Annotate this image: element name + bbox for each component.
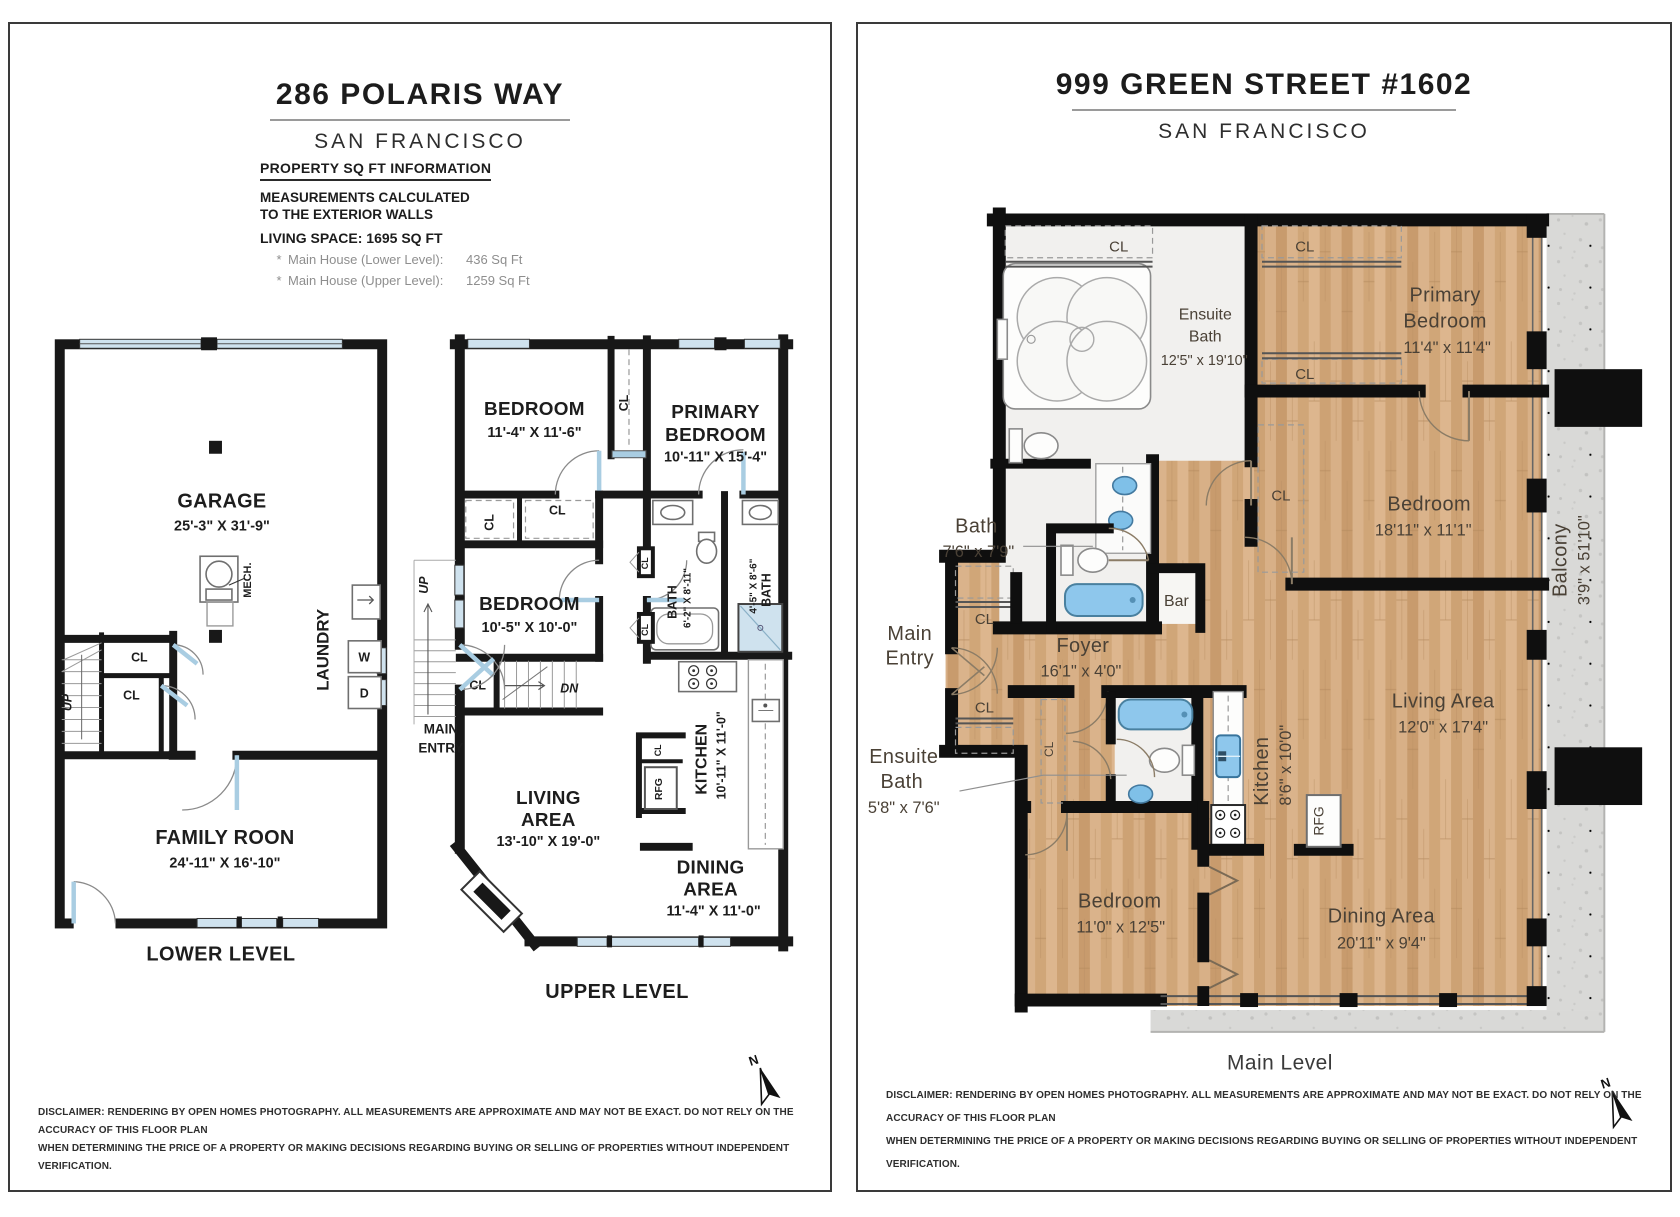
right-disclaimer: DISCLAIMER: RENDERING BY OPEN HOMES PHOT… xyxy=(886,1084,1650,1176)
primary-label-2: BEDROOM xyxy=(665,425,766,446)
bath2-label: BATH xyxy=(759,573,773,607)
closet-label: CL xyxy=(617,394,631,411)
dryer-label: D xyxy=(360,687,369,701)
main-entry-label-2: ENTRY xyxy=(418,740,463,755)
left-disclaimer: DISCLAIMER: RENDERING BY OPEN HOMES PHOT… xyxy=(38,1104,810,1176)
dn-label: DN xyxy=(560,682,579,696)
main-level-label: Main Level xyxy=(1227,1052,1333,1075)
primary-dims: 10'-11" X 15'-4" xyxy=(664,450,767,466)
rfg-label: RFG xyxy=(654,778,665,800)
living-dims: 13'-10" X 19'-0" xyxy=(496,834,600,850)
info-living-space: LIVING SPACE: 1695 SQ FT xyxy=(260,230,530,246)
window-post xyxy=(201,337,217,350)
bath-dims: 7'6" x 7'9" xyxy=(943,543,1015,561)
left-header: 286 POLARIS WAY SAN FRANCISCO xyxy=(10,78,830,154)
bedroom2-label: Bedroom xyxy=(1078,891,1162,913)
stove-icon xyxy=(679,662,737,692)
info-heading: PROPERTY SQ FT INFORMATION xyxy=(260,160,491,181)
ensuite2-label-2: Bath xyxy=(881,771,924,793)
upper-level-label: UPPER LEVEL xyxy=(545,981,689,1003)
dining-label-2: AREA xyxy=(683,880,738,901)
closet-label: CL xyxy=(975,611,994,628)
bedroom1-label: Bedroom xyxy=(1387,493,1471,515)
primary-dims: 11'4" x 11'4" xyxy=(1403,339,1491,357)
closet-label: CL xyxy=(1295,366,1314,383)
balcony-column xyxy=(1555,369,1643,427)
bath-label: Bath xyxy=(955,515,998,537)
bedroom2-dims: 11'0" x 12'5" xyxy=(1076,918,1165,936)
kitchen-dims: 10'-11" X 11'-0" xyxy=(715,711,729,799)
closet-label: CL xyxy=(549,503,566,517)
closet-label: CL xyxy=(653,744,663,756)
closet-label: CL xyxy=(1295,239,1314,256)
balcony-dims: 3'9" x 51'10" xyxy=(1575,515,1593,605)
right-title: 999 GREEN STREET #1602 xyxy=(858,68,1670,102)
closet-label: CL xyxy=(975,699,994,716)
up-label-upper: UP xyxy=(417,576,431,594)
right-floorplan: CL Ensuite Bath 12'5" x 19'10" CL CL Pri… xyxy=(858,24,1670,1190)
bar-label: Bar xyxy=(1164,593,1189,610)
closet-label: CL xyxy=(1042,741,1056,757)
main-entry-label-1: MAIN xyxy=(424,721,458,736)
garage-dims: 25'-3" X 31'-9" xyxy=(174,518,270,534)
property-info-block: PROPERTY SQ FT INFORMATION MEASUREMENTS … xyxy=(260,160,530,288)
dining-dims: 11'-4" X 11'-0" xyxy=(666,903,760,919)
laundry-label: LAUNDRY xyxy=(313,609,332,691)
ensuite1-label-2: Bath xyxy=(1189,328,1222,345)
left-title: 286 POLARIS WAY xyxy=(10,78,830,112)
lower-level-plan: UP CL CL xyxy=(60,337,386,965)
living-label-2: AREA xyxy=(521,810,576,831)
info-measure-1: MEASUREMENTS CALCULATED xyxy=(260,190,470,205)
kitchen-label: Kitchen xyxy=(1251,737,1273,806)
foyer-dims: 16'1" x 4'0" xyxy=(1040,663,1121,681)
main-entry-label-1: Main xyxy=(887,623,932,645)
floorplan-sheet: 286 POLARIS WAY SAN FRANCISCO PROPERTY S… xyxy=(0,0,1680,1217)
closet-label: CL xyxy=(131,651,148,665)
bedroom1-dims: 11'-4" X 11'-6" xyxy=(487,425,581,441)
north-arrow-icon: N xyxy=(746,1049,781,1104)
dining-label-1: DINING xyxy=(677,858,745,879)
bath2-dims: 4'-5" X 8'-6" xyxy=(748,558,759,613)
left-title-rule xyxy=(270,119,570,121)
family-room-dims: 24'-11" X 16'-10" xyxy=(169,856,280,872)
right-city: SAN FRANCISCO xyxy=(858,120,1670,144)
balcony-floor xyxy=(1547,214,1605,1010)
mech-label: MECH. xyxy=(242,563,254,598)
bedroom2-dims: 10'-5" X 10'-0" xyxy=(482,620,578,636)
closet-label: CL xyxy=(640,623,650,635)
dining-label: Dining Area xyxy=(1328,905,1436,927)
garage-post xyxy=(209,630,222,643)
vanity-double-sink xyxy=(1096,464,1151,554)
bedroom1-label: BEDROOM xyxy=(484,399,585,420)
washer-label: W xyxy=(358,651,370,665)
left-panel-286-polaris: 286 POLARIS WAY SAN FRANCISCO PROPERTY S… xyxy=(8,22,832,1192)
kitchen-counter xyxy=(748,660,783,849)
closet-label: CL xyxy=(483,514,497,531)
left-city: SAN FRANCISCO xyxy=(10,130,830,154)
stove-icon xyxy=(1211,805,1245,845)
info-item-upper: * Main House (Upper Level): 1259 Sq Ft xyxy=(270,273,530,288)
bedroom2-label: BEDROOM xyxy=(479,594,580,615)
soaking-tub-icon xyxy=(997,264,1150,409)
primary-label-1: Primary xyxy=(1409,285,1480,307)
kitchen-dims: 8'6" x 10'0" xyxy=(1277,725,1295,806)
kitchen-label: KITCHEN xyxy=(694,724,711,795)
balcony-column xyxy=(1555,747,1643,805)
bath1-label: BATH xyxy=(666,585,680,619)
upper-level-plan: CL CL CL xyxy=(414,337,788,1003)
garage-label: GARAGE xyxy=(177,490,266,512)
north-label: N xyxy=(747,1052,761,1069)
info-item-lower: * Main House (Lower Level): 436 Sq Ft xyxy=(270,252,530,267)
closet-label: CL xyxy=(1271,488,1290,505)
ensuite2-dims: 5'8" x 7'6" xyxy=(868,799,940,817)
right-header: 999 GREEN STREET #1602 SAN FRANCISCO xyxy=(858,68,1670,144)
main-entry-label-2: Entry xyxy=(886,648,934,670)
living-label-1: LIVING xyxy=(516,788,581,809)
bedroom1-dims: 18'11" x 11'1" xyxy=(1375,521,1472,539)
main-level-plan: CL Ensuite Bath 12'5" x 19'10" CL CL Pri… xyxy=(868,214,1642,1075)
living-label: Living Area xyxy=(1392,691,1495,713)
dining-dims: 20'11" x 9'4" xyxy=(1337,934,1426,952)
up-label-lower: UP xyxy=(61,693,75,711)
living-dims: 12'0" x 17'4" xyxy=(1398,718,1488,736)
right-panel-999-green: 999 GREEN STREET #1602 SAN FRANCISCO xyxy=(856,22,1672,1192)
closet-label: CL xyxy=(1109,239,1128,256)
info-measure-2: TO THE EXTERIOR WALLS xyxy=(260,207,433,222)
balcony-label: Balcony xyxy=(1550,523,1572,597)
ensuite1-label-1: Ensuite xyxy=(1179,306,1232,323)
ensuite2-label-1: Ensuite xyxy=(869,746,938,768)
right-title-rule xyxy=(1072,109,1456,111)
lower-level-label: LOWER LEVEL xyxy=(146,943,295,965)
foyer-label: Foyer xyxy=(1056,635,1109,657)
family-room-label: FAMILY ROON xyxy=(155,827,294,849)
rfg-label: RFG xyxy=(1311,806,1327,835)
ensuite1-dims: 12'5" x 19'10" xyxy=(1161,353,1248,369)
primary-label-2: Bedroom xyxy=(1403,310,1487,332)
garage-post xyxy=(209,441,222,454)
closet-label: CL xyxy=(640,557,650,569)
bath1-dims: 6'-2" X 8'-11" xyxy=(683,568,694,628)
primary-label-1: PRIMARY xyxy=(671,402,760,423)
closet-label: CL xyxy=(123,689,140,703)
